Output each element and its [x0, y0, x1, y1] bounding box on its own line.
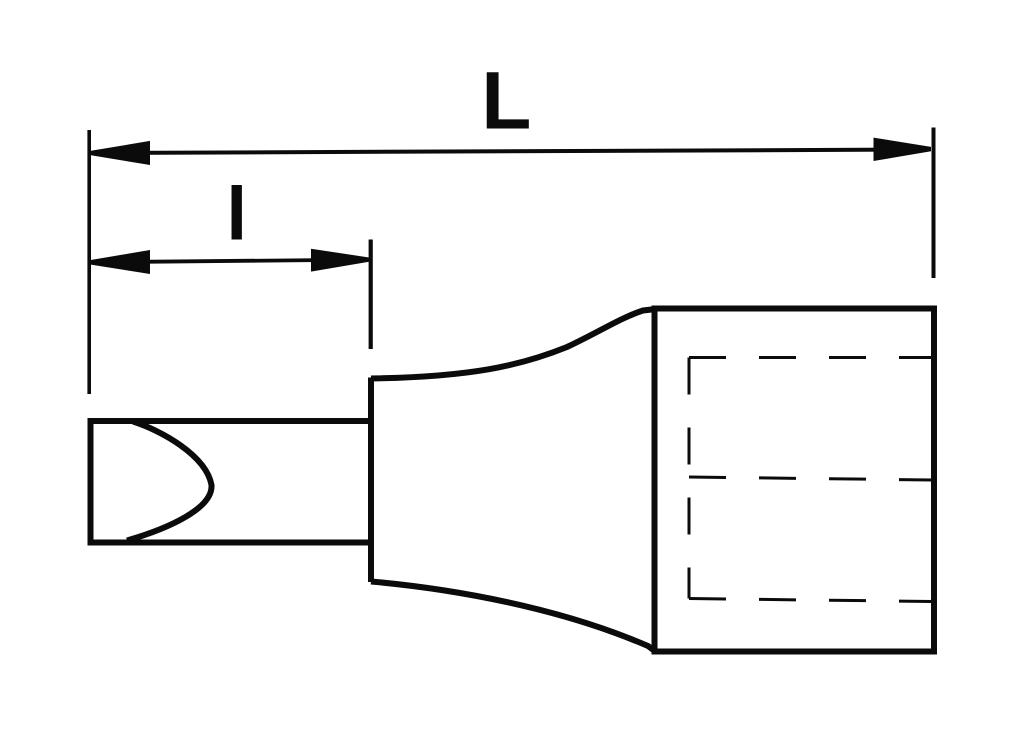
- svg-text:l: l: [226, 172, 247, 256]
- svg-text:L: L: [481, 56, 531, 147]
